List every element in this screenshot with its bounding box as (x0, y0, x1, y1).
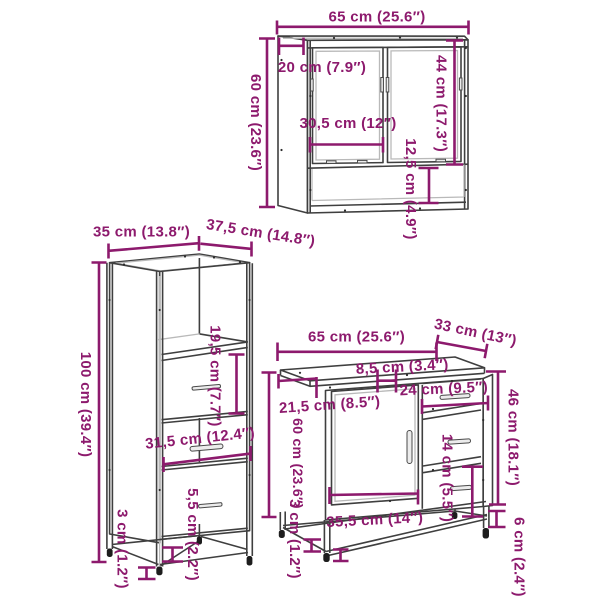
svg-text:30,5 cm (12″): 30,5 cm (12″) (300, 115, 397, 132)
svg-text:65 cm (25.6″): 65 cm (25.6″) (329, 9, 426, 26)
svg-text:14 cm (5.5″): 14 cm (5.5″) (438, 434, 455, 522)
svg-text:3 cm (1.2″): 3 cm (1.2″) (286, 499, 303, 579)
svg-text:44 cm (17.3″): 44 cm (17.3″) (432, 55, 449, 152)
svg-text:35 cm (13.8″): 35 cm (13.8″) (93, 224, 190, 241)
svg-text:100 cm (39.4″): 100 cm (39.4″) (77, 352, 94, 458)
svg-text:19,5 cm (7.7″): 19,5 cm (7.7″) (206, 325, 223, 426)
svg-text:65 cm (25.6″): 65 cm (25.6″) (308, 329, 405, 346)
svg-text:60 cm (23.6″): 60 cm (23.6″) (247, 74, 264, 171)
svg-text:12,5 cm (4.9″): 12,5 cm (4.9″) (402, 138, 419, 239)
svg-text:46 cm (18.1″): 46 cm (18.1″) (504, 389, 521, 486)
svg-text:3 cm (1.2″): 3 cm (1.2″) (113, 509, 130, 589)
svg-text:60 cm (23.6″): 60 cm (23.6″) (290, 418, 306, 509)
svg-text:20 cm (7.9″): 20 cm (7.9″) (278, 59, 366, 76)
svg-text:5,5 cm (2.2″): 5,5 cm (2.2″) (184, 488, 201, 581)
svg-text:6 cm (2.4″): 6 cm (2.4″) (510, 517, 527, 597)
